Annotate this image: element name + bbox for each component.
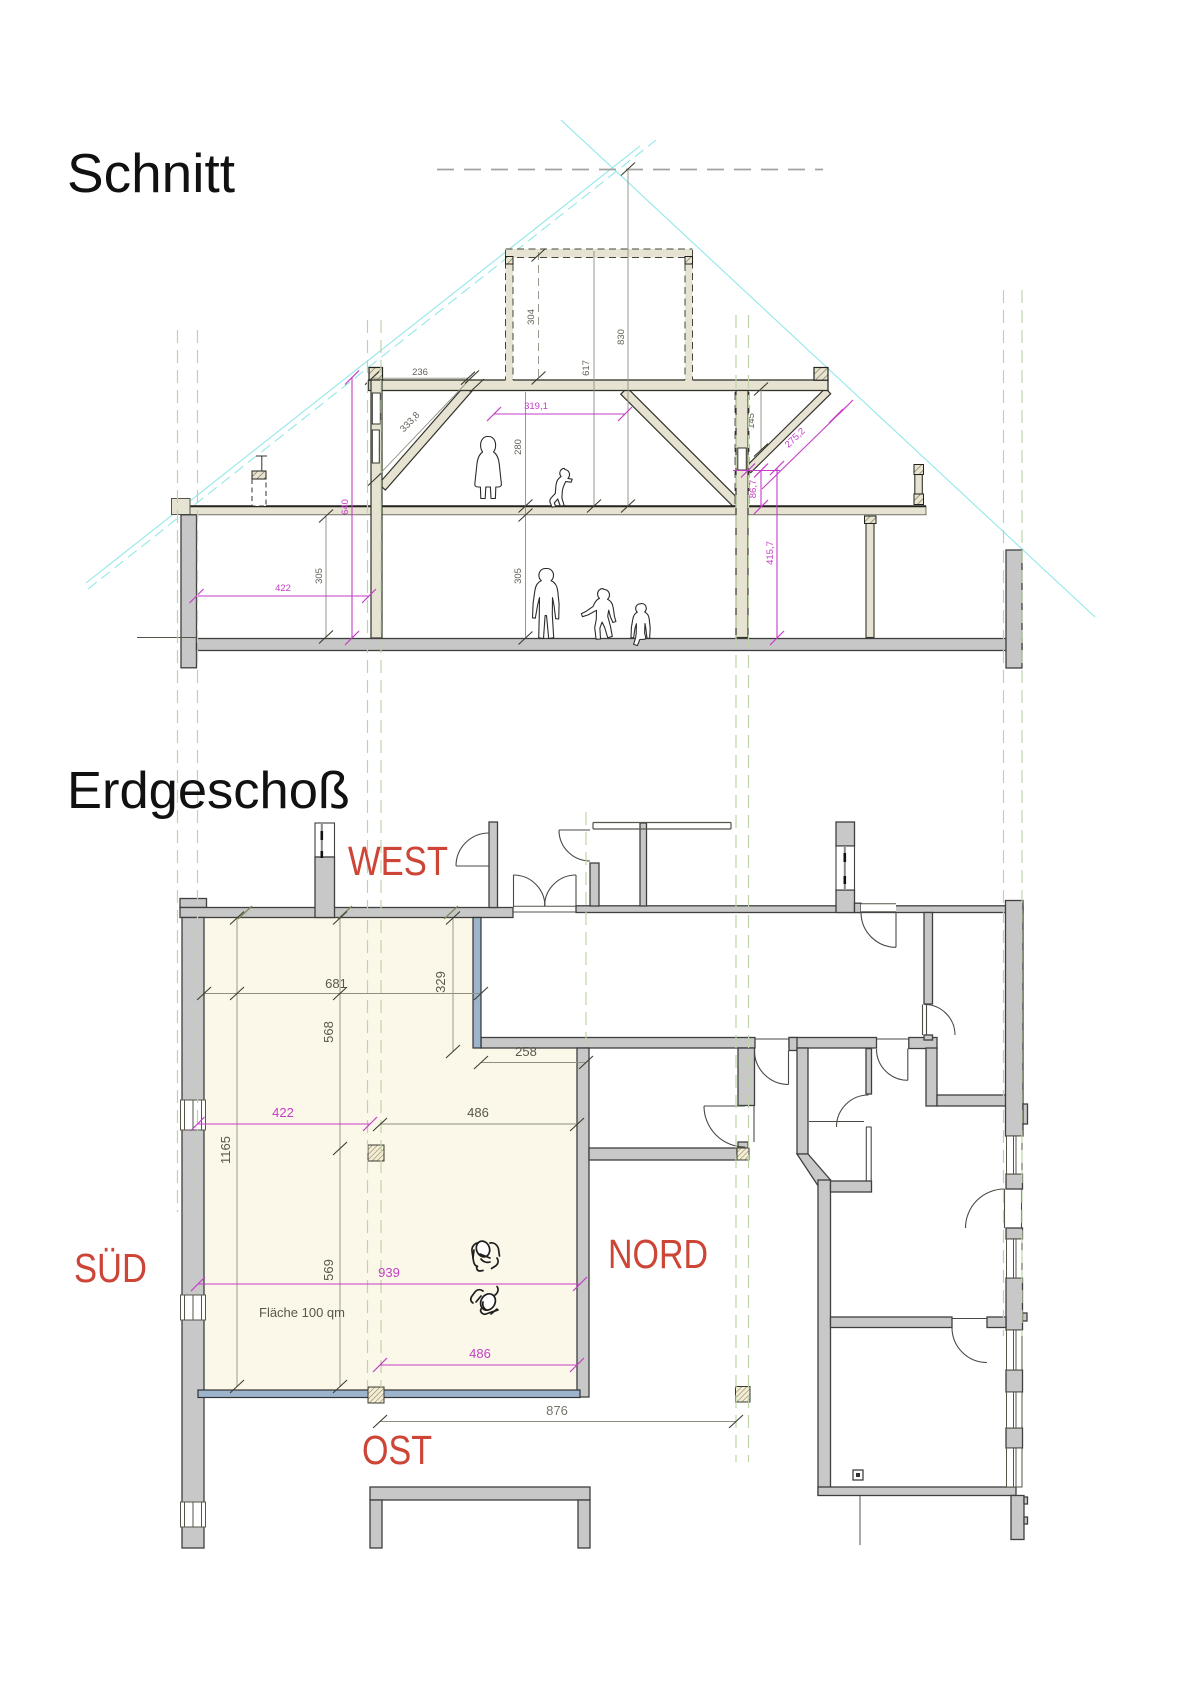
svg-text:NORD: NORD (608, 1231, 708, 1277)
svg-text:319,1: 319,1 (524, 401, 548, 412)
svg-text:617: 617 (581, 360, 592, 376)
svg-text:86,7: 86,7 (748, 480, 759, 499)
svg-text:SÜD: SÜD (74, 1245, 147, 1291)
svg-text:830: 830 (616, 329, 627, 345)
svg-text:329: 329 (433, 971, 448, 993)
svg-text:569: 569 (321, 1259, 336, 1281)
svg-text:WEST: WEST (348, 838, 448, 884)
svg-text:568: 568 (321, 1021, 336, 1043)
svg-text:305: 305 (314, 568, 325, 584)
svg-text:236: 236 (412, 367, 428, 378)
svg-text:422: 422 (272, 1105, 294, 1120)
svg-text:422: 422 (275, 583, 291, 594)
svg-text:280: 280 (513, 439, 524, 455)
svg-text:145: 145 (746, 413, 757, 429)
svg-text:876: 876 (546, 1403, 568, 1418)
svg-text:Fläche 100 qm: Fläche 100 qm (259, 1305, 345, 1320)
svg-text:Schnitt: Schnitt (67, 142, 235, 204)
svg-text:681: 681 (325, 976, 347, 991)
svg-text:1165: 1165 (218, 1136, 233, 1164)
svg-text:304: 304 (526, 309, 537, 325)
svg-text:305: 305 (513, 568, 524, 584)
svg-text:486: 486 (469, 1346, 491, 1361)
svg-text:333,8: 333,8 (398, 410, 422, 435)
svg-text:486: 486 (467, 1105, 489, 1120)
svg-text:OST: OST (362, 1427, 432, 1473)
svg-text:Erdgeschoß: Erdgeschoß (67, 762, 350, 820)
svg-text:939: 939 (378, 1265, 400, 1280)
svg-text:258: 258 (515, 1044, 537, 1059)
svg-text:415,7: 415,7 (765, 541, 776, 565)
svg-text:640: 640 (340, 499, 351, 515)
